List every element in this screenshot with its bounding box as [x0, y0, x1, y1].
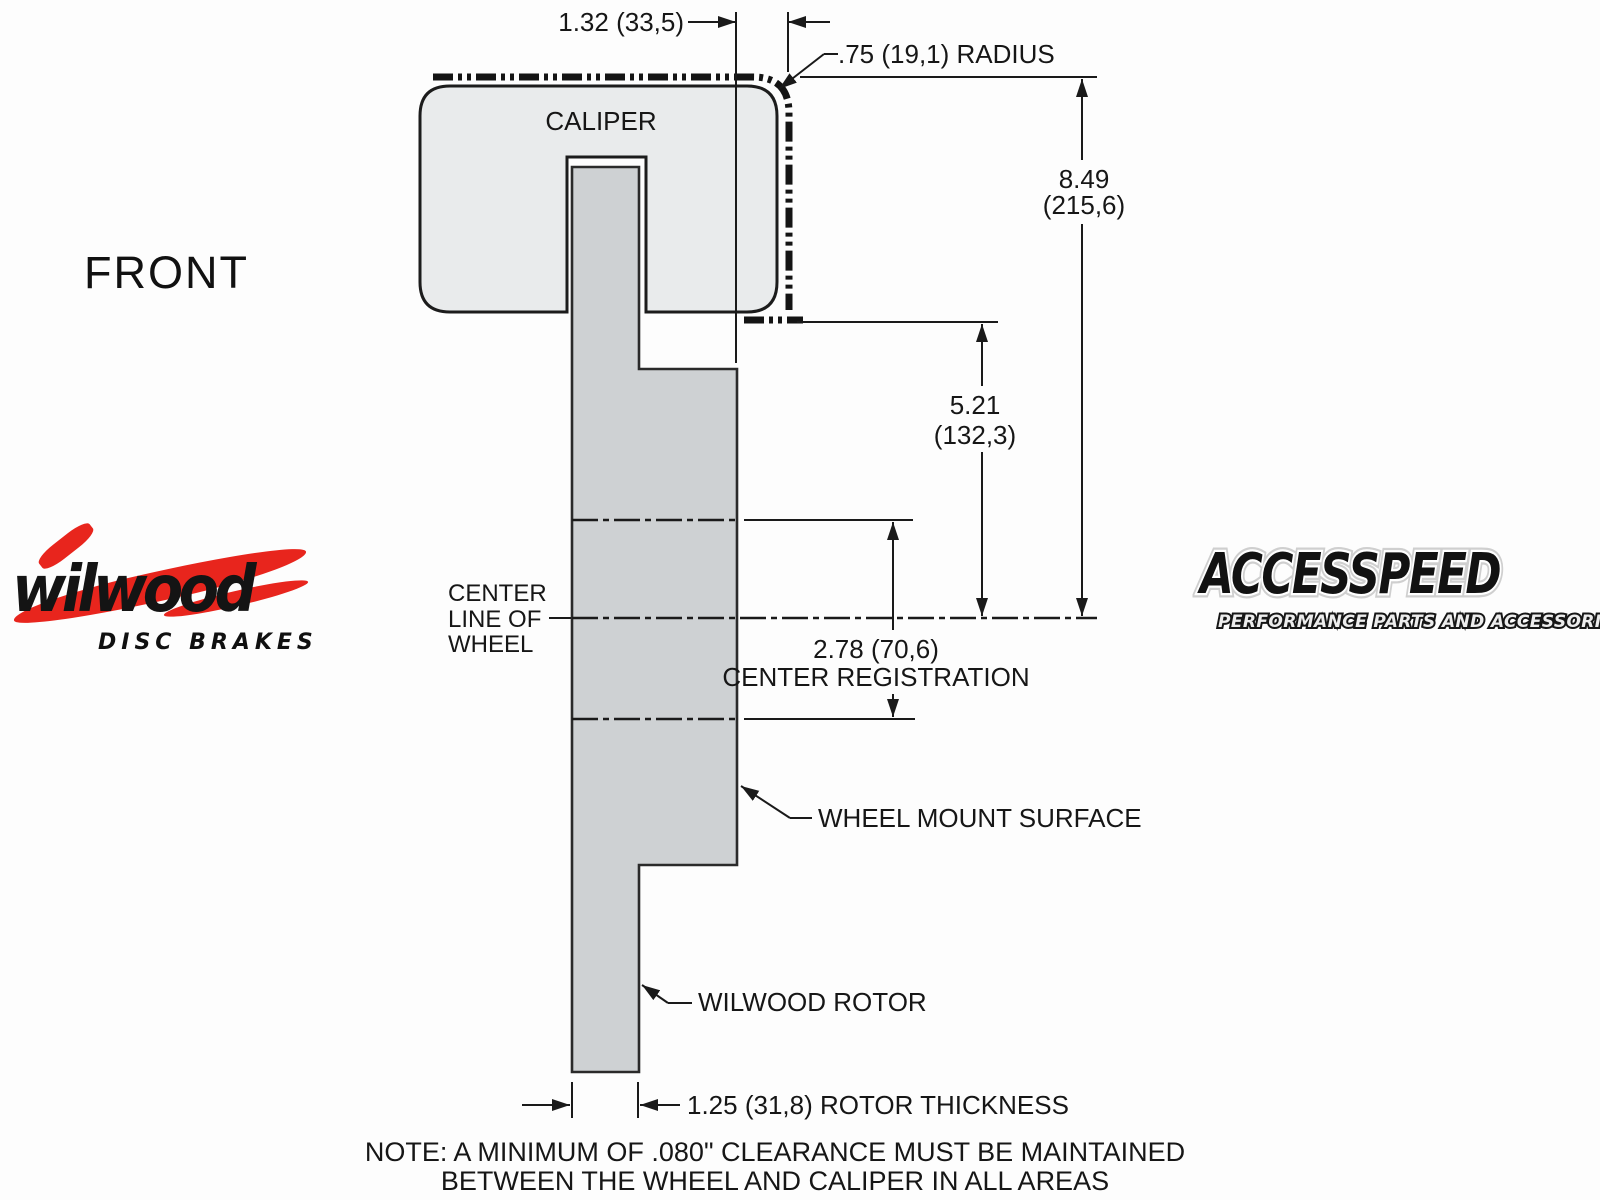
dim-mount-height-mm: (132,3) — [934, 420, 1016, 450]
note-line-1: NOTE: A MINIMUM OF .080" CLEARANCE MUST … — [365, 1137, 1185, 1167]
front-view-label: FRONT — [84, 247, 249, 298]
dim-mount-height-in: 5.21 — [950, 390, 1001, 420]
radius-leader-arrow — [779, 54, 824, 89]
wheel-mount-surface-label: WHEEL MOUNT SURFACE — [818, 803, 1142, 833]
center-line-label-1: CENTER — [448, 580, 547, 607]
wheel-mount-leader-arrow — [741, 786, 790, 818]
rotor-leader-arrow — [642, 985, 668, 1003]
wilwood-wordmark: wilwood — [12, 553, 252, 627]
caliper-label: CALIPER — [545, 106, 656, 136]
accesspeed-logo: ACCESSPEED ACCESSPEED ACCESSPEED PERFORM… — [1200, 542, 1560, 647]
wilwood-rotor-label: WILWOOD ROTOR — [698, 987, 927, 1017]
radius-text: .75 (19,1) RADIUS — [838, 39, 1055, 69]
dim-overhang-text: 1.32 (33,5) — [558, 7, 684, 37]
accesspeed-tagline: PERFORMANCE PARTS AND ACCESSORIES — [1218, 612, 1600, 632]
center-line-label-3: WHEEL — [448, 631, 533, 658]
dim-overall-height-mm: (215,6) — [1043, 190, 1125, 220]
note-line-2: BETWEEN THE WHEEL AND CALIPER IN ALL ARE… — [441, 1166, 1109, 1196]
accesspeed-wordmark: ACCESSPEED — [1200, 542, 1500, 607]
wilwood-tagline: DISC BRAKES — [98, 630, 318, 655]
dim-thickness-text: 1.25 (31,8) ROTOR THICKNESS — [687, 1090, 1069, 1120]
dim-registration-value: 2.78 (70,6) — [813, 634, 939, 664]
brake-diagram-page: FRONT CALIPER 1.32 (33,5) .75 (19,1) RAD… — [0, 0, 1600, 1200]
dim-registration-label: CENTER REGISTRATION — [722, 662, 1029, 692]
wilwood-logo: wilwood DISC BRAKES — [12, 535, 314, 660]
center-line-label-2: LINE OF — [448, 606, 541, 633]
